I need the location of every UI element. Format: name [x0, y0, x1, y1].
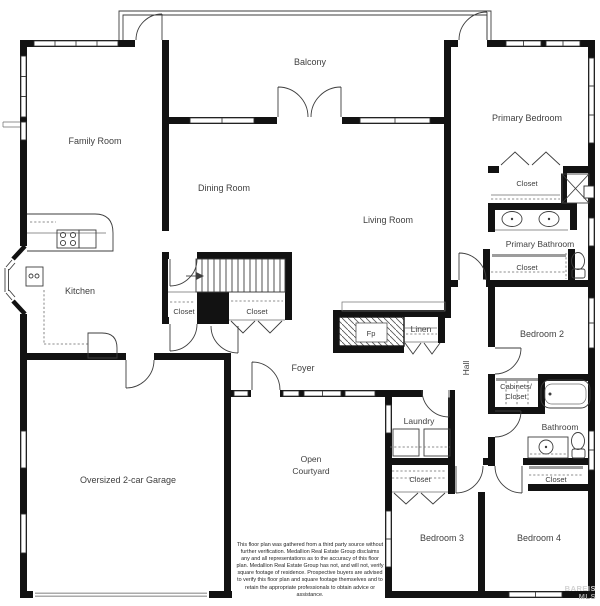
washer — [393, 429, 419, 456]
room-label-primary-bathroom: Primary Bathroom — [506, 239, 575, 249]
primary-bathroom-fixtures — [495, 174, 594, 278]
disclaimer-text: This floor plan was gathered from a thir… — [236, 542, 384, 599]
room-label-laundry: Laundry — [404, 416, 435, 426]
kitchen-counter — [27, 214, 113, 251]
toilet — [572, 433, 585, 450]
dryer — [424, 429, 450, 456]
kitchen-sink — [26, 267, 43, 286]
room-label-open-courtyard-line1: Open — [301, 454, 322, 464]
room-label-closet-bedroom-3: Closet — [409, 475, 431, 484]
room-label-balcony: Balcony — [294, 57, 327, 67]
room-label-cabinets-closet-line1: Cabinets/ — [500, 382, 533, 391]
mantel-niche — [342, 302, 445, 311]
staircase — [186, 259, 285, 292]
stairs-direction-arrow — [196, 272, 204, 280]
balcony-railing — [119, 11, 491, 42]
room-label-family-room: Family Room — [68, 136, 121, 146]
room-label-bedroom-3: Bedroom 3 — [420, 533, 464, 543]
room-label-fireplace: Fp — [367, 329, 376, 338]
room-label-linen: Linen — [411, 324, 432, 334]
room-label-primary-bedroom: Primary Bedroom — [492, 113, 562, 123]
room-label-foyer: Foyer — [291, 363, 314, 373]
room-label-cabinets-closet-line2: Closet — [505, 392, 527, 401]
room-label-hall: Hall — [461, 361, 471, 376]
room-label-kitchen: Kitchen — [65, 286, 95, 296]
room-label-closet-primary-top: Closet — [516, 179, 538, 188]
porch-rail — [3, 122, 20, 127]
room-label-open-courtyard-line2: Courtyard — [292, 466, 330, 476]
room-label-closet-bedroom-4: Closet — [545, 475, 567, 484]
mls-watermark: BAREIS MLS — [546, 585, 596, 601]
room-label-dining-room: Dining Room — [198, 183, 250, 193]
floor-plan-drawing: Balcony Family Room Dining Room Living R… — [0, 0, 600, 606]
room-label-closet-stairs-right: Closet — [246, 307, 268, 316]
room-label-bedroom-4: Bedroom 4 — [517, 533, 561, 543]
room-label-bedroom-2: Bedroom 2 — [520, 329, 564, 339]
room-label-closet-stairs-left: Closet — [173, 307, 195, 316]
floor-plan: Balcony Family Room Dining Room Living R… — [0, 0, 600, 606]
hall-bathroom-fixtures — [528, 380, 590, 458]
room-label-closet-primary-bottom: Closet — [516, 263, 538, 272]
laundry-fixtures — [390, 429, 450, 456]
mls-watermark-line2: MLS — [546, 593, 596, 601]
shower-door — [584, 186, 594, 198]
room-label-garage: Oversized 2-car Garage — [80, 475, 176, 485]
room-label-living-room: Living Room — [363, 215, 413, 225]
room-label-bathroom: Bathroom — [542, 422, 579, 432]
